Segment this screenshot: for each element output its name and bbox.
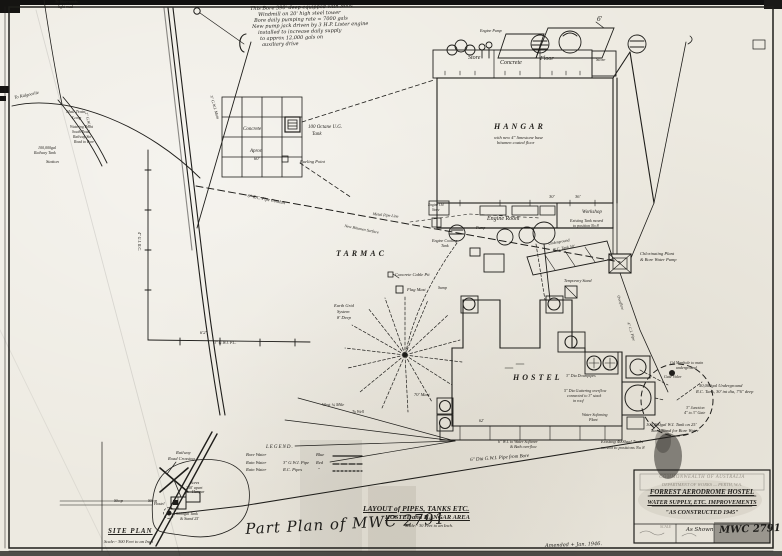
label-hangar: HANGAR	[494, 123, 546, 131]
scanned-drawing-sheet: { "note": { "lines": [ "This Bore 390' d…	[0, 0, 782, 556]
label-mail-train-loop: Mail Train	[66, 110, 85, 115]
label-tarmac: TARMAC	[336, 250, 387, 258]
label-bores2: 300' apart	[186, 486, 203, 490]
label-existing-4000: Existing 4000gal Tanks	[601, 440, 643, 445]
legend-row-colour: Blue	[316, 453, 324, 458]
label-underground-tank: 50,000gal Underground	[699, 384, 742, 389]
label-downpipes: 3" Dia Downpipes	[566, 374, 596, 378]
scan-edge-top	[0, 0, 782, 5]
label-concrete: Concrete	[500, 60, 522, 66]
legend-row-spec: 3" G.W.I. Pipe	[283, 461, 309, 466]
drawing-area: This Bore 390' deep equipped with Mills …	[0, 0, 782, 556]
label-existing-tank2: to position No 8	[573, 224, 599, 228]
label-underground-tank2: R.C. Tank, 30' int dia, 7'6" deep	[696, 390, 753, 395]
label-shop: Shop	[114, 499, 123, 504]
label-engine-pump: Engine Pump	[480, 29, 502, 33]
label-road-to-bore: Road to Bore	[74, 141, 94, 145]
label-apron: Apron	[250, 149, 262, 154]
label-engine-oil2: Store	[432, 209, 439, 213]
octane-tank-symbol	[285, 117, 300, 132]
scale-label: SCALE	[660, 526, 671, 530]
site-plan-scale: Scale:- 300 Feet to an Inch	[104, 540, 153, 545]
label-earth-grid2: System	[337, 310, 350, 315]
label-guttering3: in roof	[573, 399, 584, 403]
label-west-mile: West ¼ Mile	[322, 403, 344, 408]
label-gwi-pc: 3" G.W.I. P.C.	[214, 341, 236, 345]
layout-title: LAYOUT of PIPES, TANKS ETC.	[363, 505, 469, 513]
label-to-well: To Well	[352, 410, 364, 414]
drawing-linework	[0, 0, 782, 556]
drawing-title-line2: WATER SUPPLY, ETC. IMPROVEMENTS	[647, 500, 756, 506]
concrete-apron-grid	[222, 80, 434, 198]
drawing-title-line3: "AS CONSTRUCTED 1945"	[665, 510, 738, 516]
label-dim-62: 62'	[479, 419, 484, 423]
label-5000gal-tank2: & Stand 25'	[180, 517, 199, 521]
label-junction2: 4" to 3" Gate	[684, 411, 705, 415]
letterhead-line1: COMMONWEALTH OF AUSTRALIA	[659, 476, 745, 481]
label-flag-mast: Flag Mast	[407, 288, 426, 293]
pump-tank-cluster	[449, 203, 631, 300]
kalgoorlie-curve	[12, 103, 200, 178]
label-earth-grid: Earth Grid	[334, 304, 354, 309]
label-dim-36: 36'	[575, 195, 580, 200]
earth-grid-starburst	[345, 243, 462, 412]
label-store-left: Store	[468, 55, 480, 61]
label-railway-tank2: Railway Tank	[34, 151, 56, 155]
label-dim-6-2: 6'2"	[200, 331, 207, 336]
label-mail-train-loop2: Loop	[72, 116, 81, 121]
bore-feed-line	[620, 273, 668, 392]
drawing-title-line1: FORREST AERODROME HOSTEL	[650, 490, 754, 497]
label-octane-tank2: Tank	[312, 132, 322, 137]
stain-band	[300, 440, 362, 552]
label-hostel: HOSTEL	[513, 374, 563, 382]
legend-row-item: Bore Water	[246, 453, 266, 458]
railway-line	[164, 8, 225, 415]
cable-pit-symbol	[388, 272, 393, 277]
label-temporary-stand: Temporary Stand	[564, 279, 592, 283]
site-plan-linework	[60, 432, 249, 551]
label-workshop: Workshop	[582, 210, 602, 215]
label-store-right: Store	[596, 58, 605, 63]
label-six-ft: 6'	[597, 17, 602, 23]
label-apron-dim: 60'	[254, 157, 259, 162]
legend-row-colour: Red	[316, 461, 323, 466]
label-dim-30: 30'	[549, 195, 554, 200]
legend-title: LEGEND.	[266, 445, 294, 450]
label-apron-concrete: Concrete	[243, 127, 261, 132]
label-floor: Floor	[540, 56, 554, 62]
label-engine-cooling2: Tank	[441, 244, 449, 248]
site-plan-title: SITE PLAN	[108, 528, 153, 535]
label-crossing: Railway	[176, 451, 191, 456]
label-crossing2: Road Crossing	[168, 457, 195, 462]
label-steel-stand2: Steel Stand for Bore Water	[651, 429, 699, 434]
label-existing-4000b: moved to positions No 8	[601, 446, 645, 451]
label-light-road: light road	[58, 6, 73, 10]
label-steel-stand: 100,000gal W.I. Tank on 25'	[646, 423, 697, 428]
label-manhole2: underground	[676, 366, 697, 370]
layout-subtitle: HOSTEL and HANGAR AREA	[385, 515, 470, 522]
label-pump: Pump	[476, 226, 485, 230]
legend-row-item: Rain Water	[246, 468, 266, 473]
label-chlorinating-plant: Chlorinating Plant	[640, 252, 674, 257]
label-gate-valve: Gate Valve	[664, 375, 681, 379]
layout-scale: Scale:- 30 Feet to an Inch.	[405, 524, 453, 529]
label-gi-rc: 4" G.I. R.C.	[137, 232, 141, 251]
scale-value: As Shown	[686, 528, 713, 534]
legend-row-item: Rain Water	[246, 461, 266, 466]
label-siteplan-hostel: Hostel	[154, 502, 164, 506]
label-octane-tank: 100 Octane U.G.	[308, 125, 342, 130]
bore-note-line: auxiliary drive	[262, 42, 299, 48]
label-fueling-point: Fueling Point	[300, 160, 325, 165]
legend-row-spec: R.C. Pipes	[283, 468, 302, 473]
label-mast-70: 70' Mast	[414, 393, 430, 398]
label-engine-room: Engine Room	[487, 216, 520, 222]
flag-mast-symbol	[396, 286, 403, 293]
label-cable-pit: Concrete Cable Pit	[395, 273, 430, 278]
label-earth-grid3: 8' Deep	[337, 316, 351, 321]
label-chlorinating-plant2: & Bore Water Pump	[640, 258, 677, 263]
label-station: Station	[46, 160, 59, 165]
legend-row-colour: "	[318, 468, 320, 473]
label-softener-pipe2: & Bath overflow	[510, 445, 537, 449]
label-water-softening2: Plant	[589, 418, 598, 422]
tarmac-boundary	[145, 150, 310, 346]
letterhead-line2: DEPARTMENT OF WORKS — PERTH, W.A.	[662, 483, 742, 487]
label-siteplan-hangar: Hangar	[192, 490, 204, 494]
label-hangar-note2: bitumen coated floor	[497, 141, 535, 146]
label-sump: Sump	[438, 286, 447, 290]
bore-pipe-line	[197, 42, 251, 228]
